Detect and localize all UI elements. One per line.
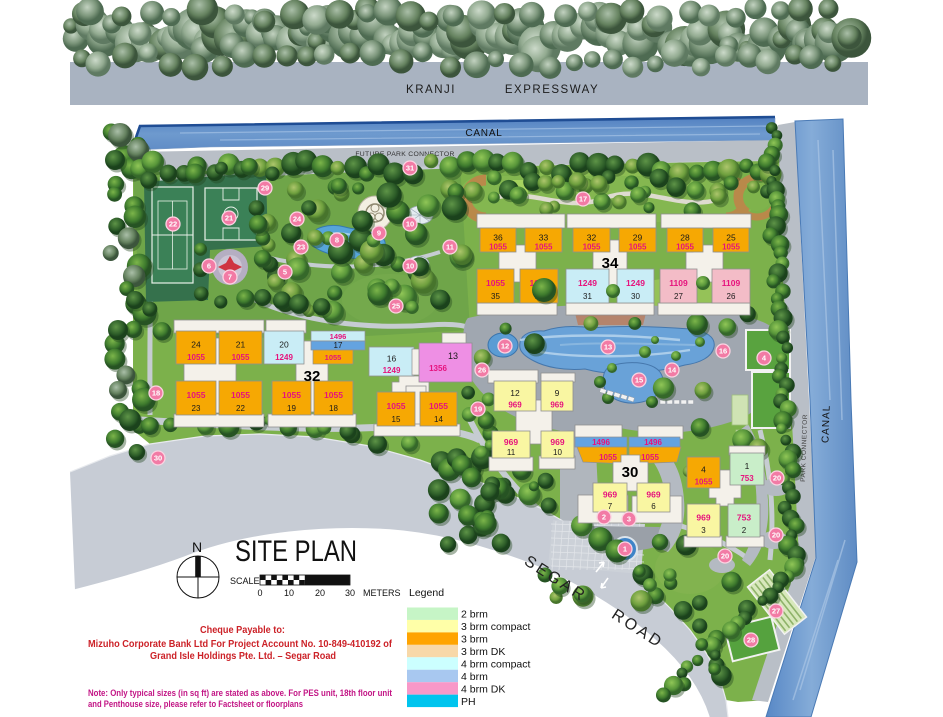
svg-text:10: 10 (406, 262, 414, 271)
svg-text:30: 30 (631, 292, 640, 301)
svg-text:10: 10 (553, 448, 562, 457)
svg-text:1496: 1496 (330, 332, 347, 341)
svg-text:Note: Only typical sizes (in s: Note: Only typical sizes (in sq ft) are … (88, 688, 392, 698)
svg-text:1055: 1055 (676, 243, 694, 252)
svg-text:2: 2 (742, 526, 747, 535)
svg-text:6: 6 (651, 502, 656, 511)
svg-text:969: 969 (550, 401, 564, 410)
svg-text:18: 18 (152, 389, 160, 398)
svg-text:1249: 1249 (275, 353, 293, 362)
svg-text:20: 20 (279, 339, 289, 349)
svg-text:969: 969 (603, 490, 617, 500)
svg-text:35: 35 (491, 292, 500, 301)
svg-text:KRANJI: KRANJI (406, 84, 456, 96)
svg-text:1055: 1055 (429, 401, 448, 411)
svg-text:753: 753 (740, 474, 754, 483)
svg-text:1055: 1055 (282, 390, 301, 400)
svg-text:1055: 1055 (187, 390, 206, 400)
svg-text:29: 29 (633, 233, 643, 243)
svg-text:27: 27 (772, 607, 780, 616)
svg-text:10: 10 (406, 220, 414, 229)
svg-text:7: 7 (228, 273, 232, 282)
svg-text:Cheque Payable to:: Cheque Payable to: (200, 624, 285, 636)
svg-text:20: 20 (315, 588, 325, 598)
svg-text:3: 3 (627, 515, 631, 524)
svg-text:28: 28 (680, 233, 690, 243)
svg-text:24: 24 (191, 339, 201, 349)
svg-text:30: 30 (622, 464, 639, 481)
svg-text:PH: PH (461, 696, 476, 708)
svg-text:1055: 1055 (722, 243, 740, 252)
svg-text:N: N (192, 539, 202, 555)
svg-text:25: 25 (726, 233, 736, 243)
svg-text:23: 23 (192, 404, 201, 413)
svg-text:9: 9 (377, 229, 381, 238)
svg-text:0: 0 (257, 588, 262, 598)
svg-text:16: 16 (387, 354, 397, 364)
svg-text:1496: 1496 (592, 438, 610, 447)
svg-text:32: 32 (587, 233, 597, 243)
svg-text:1055: 1055 (641, 453, 659, 462)
svg-text:20: 20 (772, 531, 780, 540)
svg-text:1: 1 (623, 545, 627, 554)
svg-text:SITE PLAN: SITE PLAN (235, 535, 357, 568)
svg-text:and Penthouse size, please ref: and Penthouse size, please refer to Fact… (88, 699, 303, 709)
svg-text:1055: 1055 (535, 243, 553, 252)
svg-text:14: 14 (668, 366, 677, 375)
svg-text:1055: 1055 (387, 401, 406, 411)
svg-text:CANAL: CANAL (465, 128, 502, 139)
svg-text:969: 969 (646, 490, 660, 500)
svg-text:1055: 1055 (489, 243, 507, 252)
svg-text:19: 19 (474, 405, 482, 414)
svg-text:1055: 1055 (232, 353, 250, 362)
svg-text:1055: 1055 (187, 353, 205, 362)
svg-text:34: 34 (602, 255, 619, 272)
svg-text:2: 2 (602, 513, 606, 522)
svg-text:20: 20 (721, 552, 729, 561)
svg-text:753: 753 (737, 512, 751, 522)
svg-text:Legend: Legend (409, 587, 444, 599)
svg-text:11: 11 (507, 448, 516, 457)
svg-text:1109: 1109 (722, 278, 741, 288)
svg-text:1249: 1249 (626, 278, 645, 288)
svg-text:15: 15 (635, 376, 643, 385)
svg-text:1055: 1055 (629, 243, 647, 252)
svg-text:7: 7 (608, 502, 613, 511)
svg-text:30: 30 (154, 454, 162, 463)
svg-text:12: 12 (501, 342, 509, 351)
svg-text:4 brm DK: 4 brm DK (461, 683, 505, 695)
svg-text:9: 9 (555, 388, 560, 398)
svg-text:2 brm: 2 brm (461, 609, 488, 621)
svg-text:3: 3 (701, 526, 706, 535)
svg-text:24: 24 (293, 215, 302, 224)
svg-text:17: 17 (334, 341, 343, 350)
svg-text:3 brm: 3 brm (461, 634, 488, 646)
svg-text:1055: 1055 (486, 278, 505, 288)
svg-text:31: 31 (583, 292, 592, 301)
svg-text:5: 5 (283, 268, 287, 277)
svg-text:1: 1 (745, 461, 750, 471)
svg-text:26: 26 (727, 292, 736, 301)
svg-text:1496: 1496 (644, 438, 662, 447)
svg-text:17: 17 (579, 195, 587, 204)
svg-text:METERS: METERS (363, 588, 401, 598)
svg-text:4 brm compact: 4 brm compact (461, 659, 531, 671)
svg-text:13: 13 (448, 351, 458, 361)
svg-text:4 brm: 4 brm (461, 671, 488, 683)
svg-text:32: 32 (304, 368, 321, 385)
svg-text:969: 969 (550, 437, 564, 447)
svg-text:1109: 1109 (669, 278, 688, 288)
svg-text:18: 18 (329, 404, 338, 413)
svg-text:8: 8 (335, 236, 339, 245)
svg-text:1055: 1055 (599, 453, 617, 462)
svg-text:15: 15 (392, 415, 401, 424)
svg-text:22: 22 (236, 404, 245, 413)
svg-text:11: 11 (446, 243, 454, 252)
svg-text:10: 10 (284, 588, 294, 598)
svg-text:969: 969 (696, 512, 710, 522)
svg-text:30: 30 (345, 588, 355, 598)
svg-text:16: 16 (719, 347, 727, 356)
svg-text:21: 21 (225, 214, 233, 223)
svg-text:1055: 1055 (325, 353, 342, 362)
svg-text:1055: 1055 (324, 390, 343, 400)
svg-text:25: 25 (392, 302, 400, 311)
svg-text:Mizuho Corporate Bank Ltd For: Mizuho Corporate Bank Ltd For Project Ac… (88, 638, 392, 650)
svg-text:CANAL: CANAL (820, 405, 832, 444)
svg-text:3 brm compact: 3 brm compact (461, 621, 531, 633)
svg-text:20: 20 (773, 474, 781, 483)
svg-text:1249: 1249 (578, 278, 597, 288)
svg-text:23: 23 (297, 243, 305, 252)
svg-text:28: 28 (747, 636, 755, 645)
svg-text:13: 13 (604, 343, 612, 352)
svg-text:27: 27 (674, 292, 683, 301)
svg-text:4: 4 (701, 465, 706, 475)
svg-text:21: 21 (236, 339, 246, 349)
svg-text:1055: 1055 (583, 243, 601, 252)
svg-text:1055: 1055 (231, 390, 250, 400)
svg-text:1055: 1055 (695, 477, 713, 486)
svg-text:6: 6 (207, 262, 211, 271)
svg-text:969: 969 (508, 401, 522, 410)
svg-text:1356: 1356 (429, 364, 447, 373)
svg-text:1249: 1249 (383, 366, 401, 375)
svg-text:Grand Isle Holdings Pte. Ltd.: Grand Isle Holdings Pte. Ltd. – Segar Ro… (150, 650, 336, 662)
svg-text:36: 36 (493, 233, 503, 243)
svg-text:22: 22 (169, 220, 177, 229)
svg-text:14: 14 (434, 415, 443, 424)
svg-text:31: 31 (406, 164, 414, 173)
svg-text:EXPRESSWAY: EXPRESSWAY (505, 84, 599, 96)
svg-text:3 brm DK: 3 brm DK (461, 646, 505, 658)
svg-text:19: 19 (287, 404, 296, 413)
svg-text:33: 33 (539, 233, 549, 243)
svg-text:12: 12 (510, 388, 520, 398)
svg-text:969: 969 (504, 437, 518, 447)
svg-text:26: 26 (478, 366, 486, 375)
svg-text:SCALE: SCALE (230, 576, 260, 586)
svg-text:29: 29 (261, 184, 269, 193)
